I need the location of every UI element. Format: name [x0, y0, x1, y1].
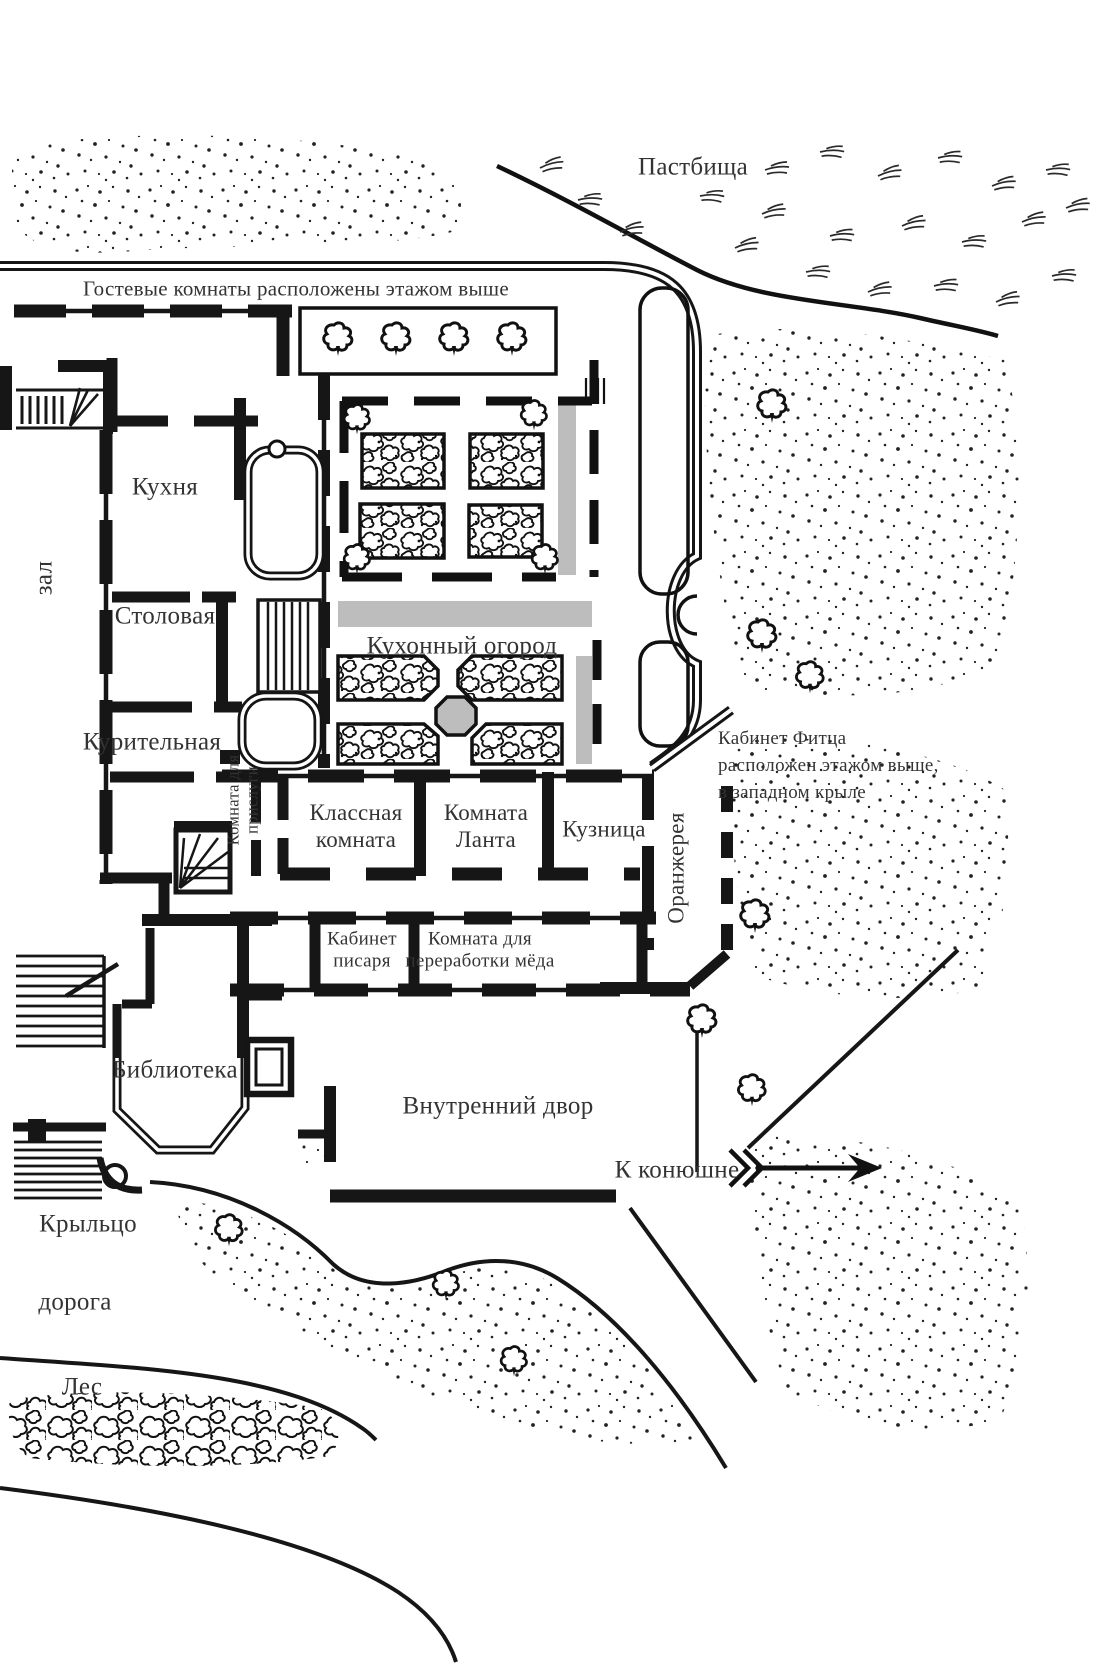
- garden-stair-icon: [258, 600, 320, 692]
- label-hall: зал: [29, 561, 59, 596]
- label-fitz-study-note: Кабинет Фитца расположен этажом выше, в …: [718, 726, 939, 807]
- tree-icon: [324, 323, 352, 356]
- tree-icon: [498, 323, 526, 356]
- estate-map: Пастбища Гостевые комнаты расположены эт…: [0, 0, 1100, 1669]
- stable-road-lower: [630, 1208, 756, 1382]
- kitchen-garden-area: [300, 308, 604, 766]
- entrance-stair-upper-icon: [16, 956, 118, 1048]
- forest-texture: [9, 1392, 338, 1466]
- label-kitchen-garden: Кухонный огород: [367, 631, 558, 661]
- label-porch: Крыльцо: [39, 1209, 137, 1239]
- fence-line: [497, 166, 998, 336]
- northwest-stair-icon: [16, 360, 112, 434]
- map-drawing: [0, 0, 1100, 1669]
- tree-icon: [382, 323, 410, 356]
- label-servants-room: Комната для прислуги: [224, 755, 263, 846]
- label-library: Библиотека: [112, 1055, 238, 1085]
- label-road: дорога: [38, 1287, 111, 1317]
- entrance-stair-lower-icon: [14, 1142, 142, 1198]
- tree-icon: [688, 1005, 716, 1038]
- label-honey-room: Комната для переработки мёда: [405, 929, 554, 974]
- grass-tuft-icons: [539, 144, 1090, 306]
- label-lant-room: Комната Ланта: [444, 799, 528, 853]
- east-lawn: [640, 288, 688, 594]
- tree-icon: [521, 401, 546, 431]
- south-road-curve: [0, 1488, 456, 1662]
- pasture-area: [497, 144, 1090, 336]
- tree-icon: [532, 545, 557, 575]
- tree-icon: [738, 1075, 765, 1106]
- label-guest-rooms-note: Гостевые комнаты расположены этажом выше: [83, 277, 509, 302]
- fountain-icon: [436, 697, 476, 735]
- gate-niche: [678, 596, 697, 634]
- label-to-stables: К конюшне: [615, 1155, 740, 1185]
- label-classroom: Классная комната: [310, 799, 403, 853]
- label-courtyard: Внутренний двор: [403, 1091, 594, 1121]
- label-forge: Кузница: [562, 815, 645, 842]
- label-pastures: Пастбища: [638, 152, 748, 182]
- tree-icon: [440, 323, 468, 356]
- label-dining-room: Столовая: [115, 601, 216, 631]
- label-forest: Лес: [62, 1372, 103, 1402]
- label-kitchen: Кухня: [132, 472, 198, 502]
- label-orangery: Оранжерея: [662, 812, 689, 923]
- label-scribe-study: Кабинет писаря: [327, 929, 397, 974]
- label-smoking-room: Курительная: [83, 727, 221, 757]
